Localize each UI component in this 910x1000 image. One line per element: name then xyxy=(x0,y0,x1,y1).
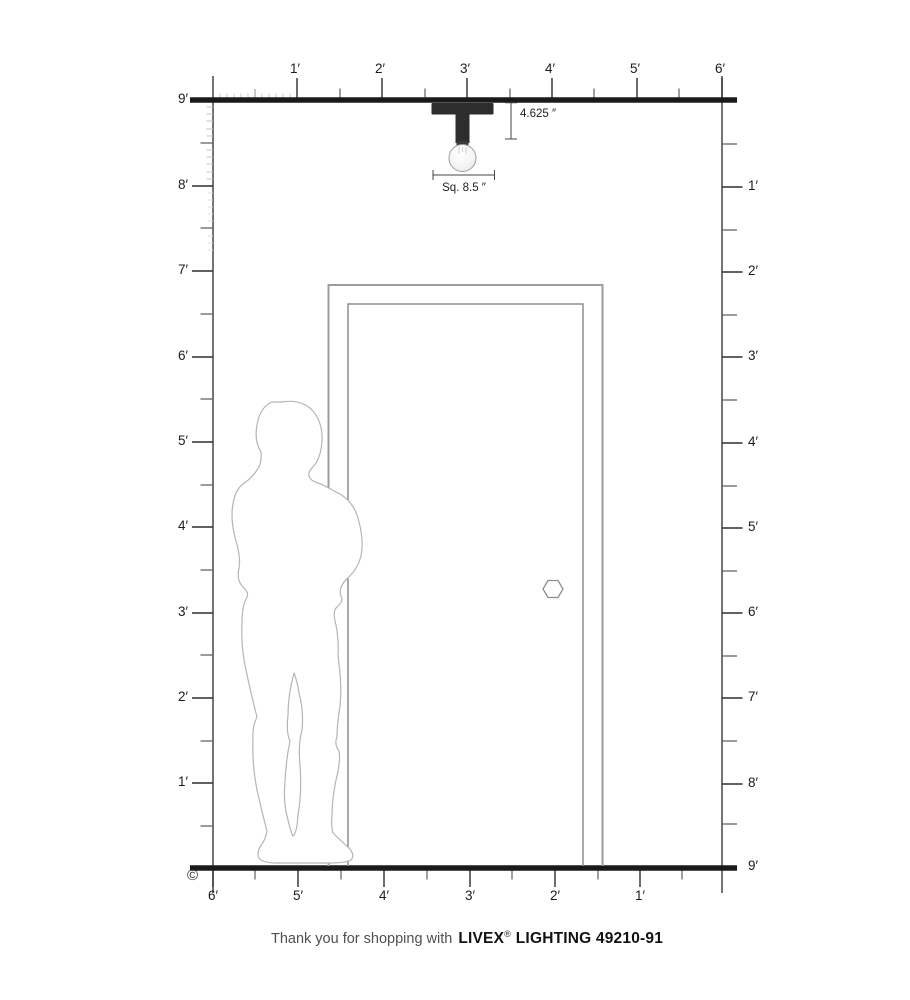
left-ruler-label: 7′ xyxy=(157,262,188,278)
height-dimension-line xyxy=(505,103,517,139)
fixture-stem xyxy=(456,112,470,143)
left-ruler-label: 9′ xyxy=(157,91,188,107)
door xyxy=(329,285,603,866)
right-ruler-label: 3′ xyxy=(748,348,758,364)
right-ruler-ticks xyxy=(722,144,743,824)
door-knob-icon xyxy=(543,581,563,598)
right-ruler-label: 2′ xyxy=(748,263,758,279)
top-ruler-label: 5′ xyxy=(621,61,649,77)
top-ruler-label: 3′ xyxy=(451,61,479,77)
bottom-ruler-label: 5′ xyxy=(284,888,312,904)
left-ruler-label: 4′ xyxy=(157,518,188,534)
fixture-height-dimension: 4.625 ″ xyxy=(520,108,556,121)
model-number: LIGHTING 49210-91 xyxy=(516,930,663,947)
footer-caption: Thank you for shopping withLIVEX®LIGHTIN… xyxy=(24,929,910,948)
bottom-ruler-label: 6′ xyxy=(199,888,227,904)
right-ruler-label: 9′ xyxy=(748,858,758,874)
right-ruler-label: 6′ xyxy=(748,604,758,620)
left-ruler-label: 5′ xyxy=(157,433,188,449)
footer-caption-text: Thank you for shopping with xyxy=(271,931,452,947)
top-ruler-label: 1′ xyxy=(281,61,309,77)
left-ruler-ticks xyxy=(192,107,213,826)
bottom-ruler-label: 3′ xyxy=(456,888,484,904)
diagram-canvas xyxy=(0,0,910,1000)
fixture-width-dimension: Sq. 8.5 ″ xyxy=(426,182,502,195)
bottom-ruler-label: 4′ xyxy=(370,888,398,904)
right-ruler-label: 7′ xyxy=(748,689,758,705)
bottom-ruler-ticks xyxy=(213,868,682,887)
top-ruler-label: 6′ xyxy=(706,61,734,77)
bottom-ruler-label: 1′ xyxy=(626,888,654,904)
copyright-icon: © xyxy=(187,868,198,884)
left-ruler-label: 3′ xyxy=(157,604,188,620)
top-ruler-ticks xyxy=(220,78,722,100)
left-ruler-label: 8′ xyxy=(157,177,188,193)
left-ruler-label: 2′ xyxy=(157,689,188,705)
light-fixture xyxy=(432,103,494,172)
person-silhouette xyxy=(232,401,362,863)
top-ruler-label: 4′ xyxy=(536,61,564,77)
left-ruler-label: 1′ xyxy=(157,774,188,790)
brand-name: LIVEX xyxy=(458,930,504,947)
registered-trademark-icon: ® xyxy=(504,929,511,939)
left-ruler-label: 6′ xyxy=(157,348,188,364)
right-ruler-label: 4′ xyxy=(748,434,758,450)
top-ruler-label: 2′ xyxy=(366,61,394,77)
door-frame xyxy=(329,285,603,866)
right-ruler-label: 5′ xyxy=(748,519,758,535)
bottom-ruler-label: 2′ xyxy=(541,888,569,904)
right-ruler-label: 8′ xyxy=(748,775,758,791)
dimension-diagram: 1′ 2′ 3′ 4′ 5′ 6′ 9′ 8′ 7′ 6′ 5′ 4′ 3′ 2… xyxy=(0,0,910,1000)
right-ruler-label: 1′ xyxy=(748,178,758,194)
